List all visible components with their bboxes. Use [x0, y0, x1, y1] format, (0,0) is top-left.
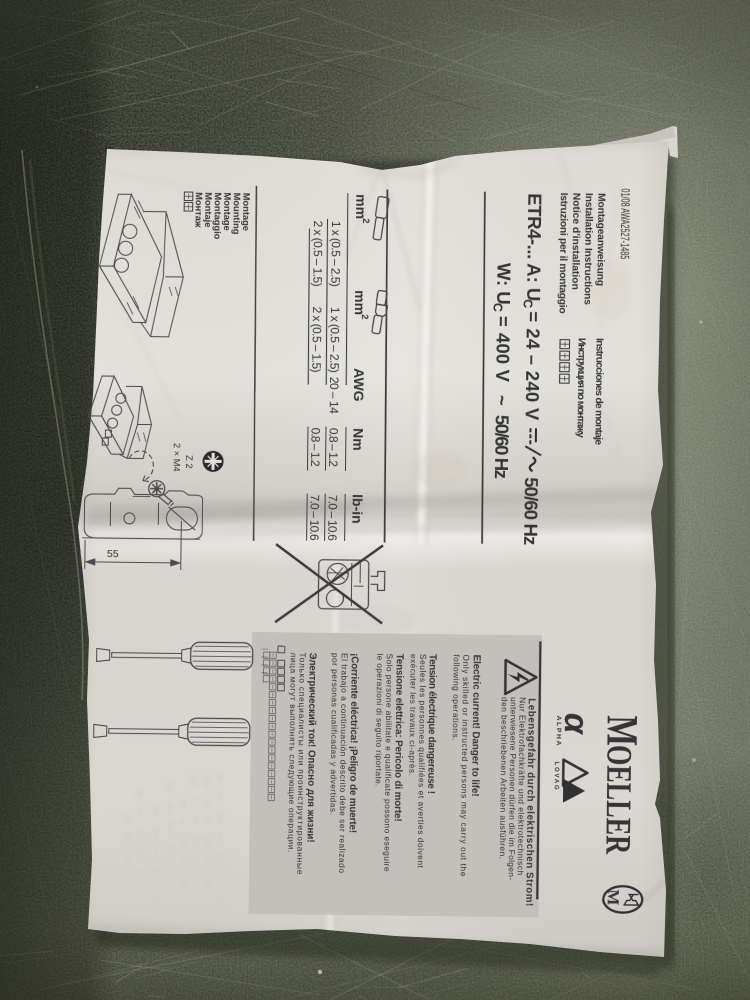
svg-text:7.0 – 10.6: 7.0 – 10.6: [325, 495, 340, 541]
svg-text:0.8 – 1.2: 0.8 – 1.2: [308, 428, 322, 467]
svg-text:W: U: W: U: [493, 263, 515, 305]
svg-text:2: 2: [360, 218, 371, 223]
svg-text:ETR4-...: ETR4-...: [524, 193, 546, 259]
svg-text:Montage: Montage: [241, 193, 251, 231]
svg-text:C: C: [520, 299, 534, 308]
svg-text:Installation Instructions: Installation Instructions: [582, 193, 594, 305]
svg-text:Инструкция по монтажу: Инструкция по монтажу: [574, 338, 586, 438]
svg-text:1 x (0.5 – 2.5): 1 x (0.5 – 2.5): [328, 221, 343, 287]
svg-text:Nm: Nm: [350, 428, 366, 451]
svg-text:lb-in: lb-in: [349, 494, 365, 524]
svg-text:le operazioni di seguito ripor: le operazioni di seguito riportate.: [374, 653, 386, 786]
svg-text:Montage: Montage: [222, 192, 232, 230]
svg-text:Instrucciones de montaje: Instrucciones de montaje: [592, 338, 604, 445]
svg-text:M: M: [604, 889, 623, 905]
svg-text:Montaje: Montaje: [203, 192, 213, 227]
svg-text:01/08 AWA2527-1485: 01/08 AWA2527-1485: [618, 188, 633, 259]
svg-text:AWG: AWG: [351, 368, 367, 402]
svg-text:mm: mm: [353, 194, 369, 219]
svg-text:den beschriebenen Arbeiten aus: den beschriebenen Arbeiten ausführen.: [498, 697, 510, 859]
svg-text:Mounting: Mounting: [231, 193, 242, 235]
svg-text:400 V: 400 V: [492, 333, 514, 383]
svg-text:por personas cualificadas y ad: por personas cualificadas y advertidas.: [328, 653, 340, 815]
svg-text:C: C: [490, 303, 504, 312]
svg-text:MOELLER: MOELLER: [596, 715, 647, 855]
svg-text:7.0 – 10.6: 7.0 – 10.6: [307, 495, 322, 541]
svg-text:Montageanweisung: Montageanweisung: [594, 193, 606, 286]
svg-text:following operations.: following operations.: [451, 654, 462, 740]
svg-text:Istruzioni per il montaggio: Istruzioni per il montaggio: [556, 193, 568, 314]
svg-text:2: 2: [359, 314, 370, 319]
svg-text:mm: mm: [352, 290, 368, 315]
svg-text:ALPHA: ALPHA: [555, 716, 562, 748]
svg-text:Z 2: Z 2: [184, 455, 194, 469]
svg-text:=: =: [493, 316, 514, 327]
svg-text:2 × M4: 2 × M4: [171, 443, 181, 472]
svg-text:20 – 14: 20 – 14: [327, 377, 341, 414]
svg-text:50/60 Hz: 50/60 Hz: [520, 477, 542, 545]
svg-text:A: U: A: U: [523, 263, 544, 301]
svg-text:0.8 – 1.2: 0.8 – 1.2: [326, 428, 340, 467]
svg-text:55: 55: [107, 548, 119, 560]
svg-text:50/60 Hz: 50/60 Hz: [491, 415, 513, 479]
svg-text:Montaggio: Montaggio: [212, 192, 223, 239]
svg-text:=: =: [523, 311, 544, 322]
svg-text:Монтаж: Монтаж: [193, 192, 203, 228]
svg-text:24 – 240 V: 24 – 240 V: [522, 328, 544, 421]
svg-text:~: ~: [492, 395, 513, 406]
svg-text:LOVAG: LOVAG: [553, 762, 559, 792]
svg-text:Notice d'installation: Notice d'installation: [569, 193, 581, 290]
svg-text:2 x (0.5 – 1.5): 2 x (0.5 – 1.5): [309, 307, 324, 373]
svg-text:exécuter les travaux ci-après.: exécuter les travaux ci-après.: [407, 654, 418, 776]
svg-text:1 x (0.5 – 2.5): 1 x (0.5 – 2.5): [327, 307, 342, 373]
svg-text:2 x (0.5 – 1.5): 2 x (0.5 – 1.5): [310, 221, 325, 287]
